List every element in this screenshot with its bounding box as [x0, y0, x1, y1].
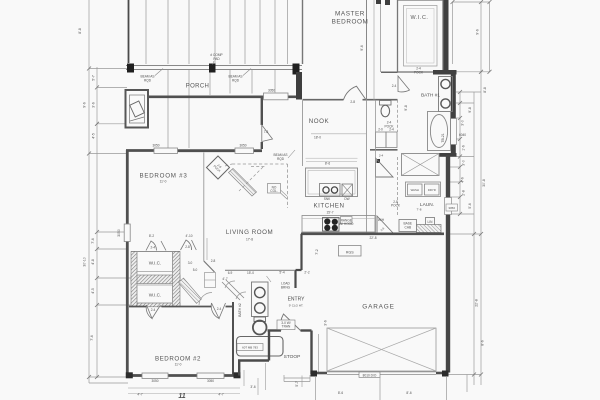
svg-text:2-0: 2-0	[378, 128, 383, 132]
svg-text:8010 D/O: 8010 D/O	[363, 373, 377, 377]
svg-text:RGS: RGS	[346, 251, 354, 255]
svg-text:4'-5: 4'-5	[91, 288, 95, 294]
svg-text:22'-8: 22'-8	[475, 299, 479, 307]
svg-text:W.I.C.: W.I.C.	[149, 261, 162, 266]
svg-text:MASTER: MASTER	[335, 11, 365, 18]
svg-text:9'-6: 9'-6	[360, 45, 364, 51]
svg-text:3050: 3050	[152, 144, 159, 148]
svg-text:2-8: 2-8	[185, 245, 190, 249]
svg-text:W.I.C.: W.I.C.	[411, 15, 429, 21]
svg-text:3-0: 3-0	[188, 261, 193, 265]
svg-text:2-4: 2-4	[217, 307, 222, 311]
svg-text:9'-8: 9'-8	[468, 107, 472, 113]
svg-text:GARAGE: GARAGE	[362, 304, 394, 311]
svg-text:7-8: 7-8	[264, 130, 269, 134]
svg-text:2-4: 2-4	[150, 246, 155, 250]
svg-text:11: 11	[178, 393, 185, 400]
svg-text:LIVING ROOM: LIVING ROOM	[226, 229, 273, 236]
svg-text:17'-8: 17'-8	[246, 238, 253, 242]
svg-text:KITCHEN: KITCHEN	[313, 203, 344, 210]
svg-text:BEDROOM #3: BEDROOM #3	[139, 173, 187, 180]
svg-text:BEDROOM #2: BEDROOM #2	[155, 356, 201, 363]
svg-text:2'-8: 2'-8	[462, 190, 466, 196]
svg-text:1'-6: 1'-6	[462, 145, 466, 151]
svg-text:2-4: 2-4	[151, 308, 156, 312]
svg-text:7'-8: 7'-8	[417, 208, 422, 212]
svg-text:BEDROOM: BEDROOM	[332, 19, 369, 26]
svg-text:POCK: POCK	[414, 71, 424, 75]
svg-text:8'-6: 8'-6	[406, 391, 411, 395]
svg-text:PAD: PAD	[213, 57, 220, 61]
svg-text:3'-6: 3'-6	[250, 385, 255, 389]
svg-text:60T MB 783: 60T MB 783	[242, 346, 258, 350]
svg-text:3'-0: 3'-0	[461, 120, 465, 126]
svg-text:4'-10: 4'-10	[186, 234, 193, 238]
svg-text:SNK: SNK	[324, 197, 331, 201]
svg-text:2-8: 2-8	[350, 100, 355, 104]
svg-text:POCK: POCK	[384, 125, 394, 129]
svg-text:TB-21: TB-21	[441, 133, 445, 142]
svg-text:W/H: W/H	[378, 218, 385, 222]
svg-text:5'-6: 5'-6	[468, 203, 472, 209]
svg-text:4'-7: 4'-7	[218, 393, 223, 397]
svg-text:RQD: RQD	[232, 79, 240, 83]
svg-text:BATH #1: BATH #1	[421, 93, 440, 99]
svg-text:11'-0: 11'-0	[160, 180, 167, 184]
svg-text:2'-2: 2'-2	[304, 271, 309, 275]
svg-text:LAUN.: LAUN.	[420, 202, 434, 208]
svg-text:COL.: COL.	[270, 189, 278, 193]
svg-text:5'-4: 5'-4	[279, 271, 284, 275]
svg-text:3050: 3050	[239, 144, 246, 148]
svg-text:30'-10: 30'-10	[83, 257, 87, 266]
svg-text:4'-6: 4'-6	[461, 177, 465, 183]
svg-text:8'-6: 8'-6	[481, 340, 485, 346]
svg-text:8'-8: 8'-8	[483, 87, 487, 93]
svg-text:RQD: RQD	[144, 79, 152, 83]
svg-text:W/ HOOD: W/ HOOD	[339, 222, 354, 226]
svg-text:5-0: 5-0	[193, 268, 198, 272]
svg-text:6-9: 6-9	[228, 271, 233, 275]
svg-text:3'-6: 3'-6	[324, 320, 328, 326]
svg-text:6040: 6040	[459, 133, 466, 137]
svg-text:WASH: WASH	[411, 188, 419, 192]
svg-text:3050: 3050	[448, 206, 455, 210]
svg-text:3050: 3050	[207, 379, 214, 383]
svg-text:4'-5: 4'-5	[92, 133, 96, 139]
svg-text:DRYR: DRYR	[428, 188, 436, 192]
svg-text:2-4: 2-4	[379, 154, 384, 158]
svg-text:7'-6: 7'-6	[90, 335, 94, 341]
svg-text:POCK: POCK	[391, 204, 401, 208]
svg-text:7'-2: 7'-2	[315, 249, 319, 255]
svg-text:3'-0: 3'-0	[462, 160, 466, 166]
svg-text:4'-8: 4'-8	[91, 259, 95, 265]
svg-text:ENTRY: ENTRY	[288, 297, 306, 303]
svg-text:3050: 3050	[117, 229, 121, 237]
svg-text:RQD: RQD	[277, 157, 285, 161]
svg-text:2-4: 2-4	[392, 84, 397, 88]
svg-text:W.I.C.: W.I.C.	[149, 293, 162, 298]
svg-text:NOOK: NOOK	[309, 118, 330, 125]
svg-text:DW: DW	[344, 197, 349, 201]
svg-text:CAB: CAB	[405, 226, 412, 230]
svg-text:8'-6: 8'-6	[325, 162, 330, 166]
svg-text:9'-8: 9'-8	[404, 105, 408, 111]
svg-text:9' CLG HT.: 9' CLG HT.	[289, 304, 304, 308]
svg-text:5'-7: 5'-7	[295, 381, 299, 387]
svg-text:7'-6: 7'-6	[91, 238, 95, 244]
svg-text:8'-6: 8'-6	[338, 391, 343, 395]
svg-text:11'-0: 11'-0	[175, 363, 182, 367]
svg-text:3'-6: 3'-6	[92, 102, 96, 108]
svg-text:30'-8: 30'-8	[482, 179, 486, 187]
svg-text:LIN: LIN	[428, 220, 434, 224]
svg-text:BRNG: BRNG	[281, 286, 291, 290]
svg-text:3050: 3050	[268, 89, 275, 93]
svg-text:PORCH: PORCH	[186, 84, 209, 90]
svg-text:STOOP: STOOP	[284, 354, 301, 360]
svg-text:5'-7: 5'-7	[92, 75, 96, 81]
svg-text:4'-7: 4'-7	[137, 393, 142, 397]
svg-text:9'-6: 9'-6	[476, 29, 480, 35]
svg-text:4'-7: 4'-7	[222, 277, 227, 281]
svg-text:BATH #2: BATH #2	[238, 303, 242, 317]
svg-text:22'-8: 22'-8	[370, 236, 377, 240]
svg-text:TRAN: TRAN	[282, 325, 291, 329]
svg-text:8'-8: 8'-8	[78, 28, 82, 34]
svg-text:15'-7: 15'-7	[327, 211, 334, 215]
svg-text:18'-0: 18'-0	[314, 136, 321, 140]
svg-text:15'-0: 15'-0	[247, 271, 254, 275]
svg-text:8'-2: 8'-2	[149, 234, 154, 238]
svg-text:2-8: 2-8	[211, 259, 216, 263]
svg-text:3050: 3050	[151, 379, 158, 383]
svg-text:9'-6: 9'-6	[83, 102, 87, 108]
